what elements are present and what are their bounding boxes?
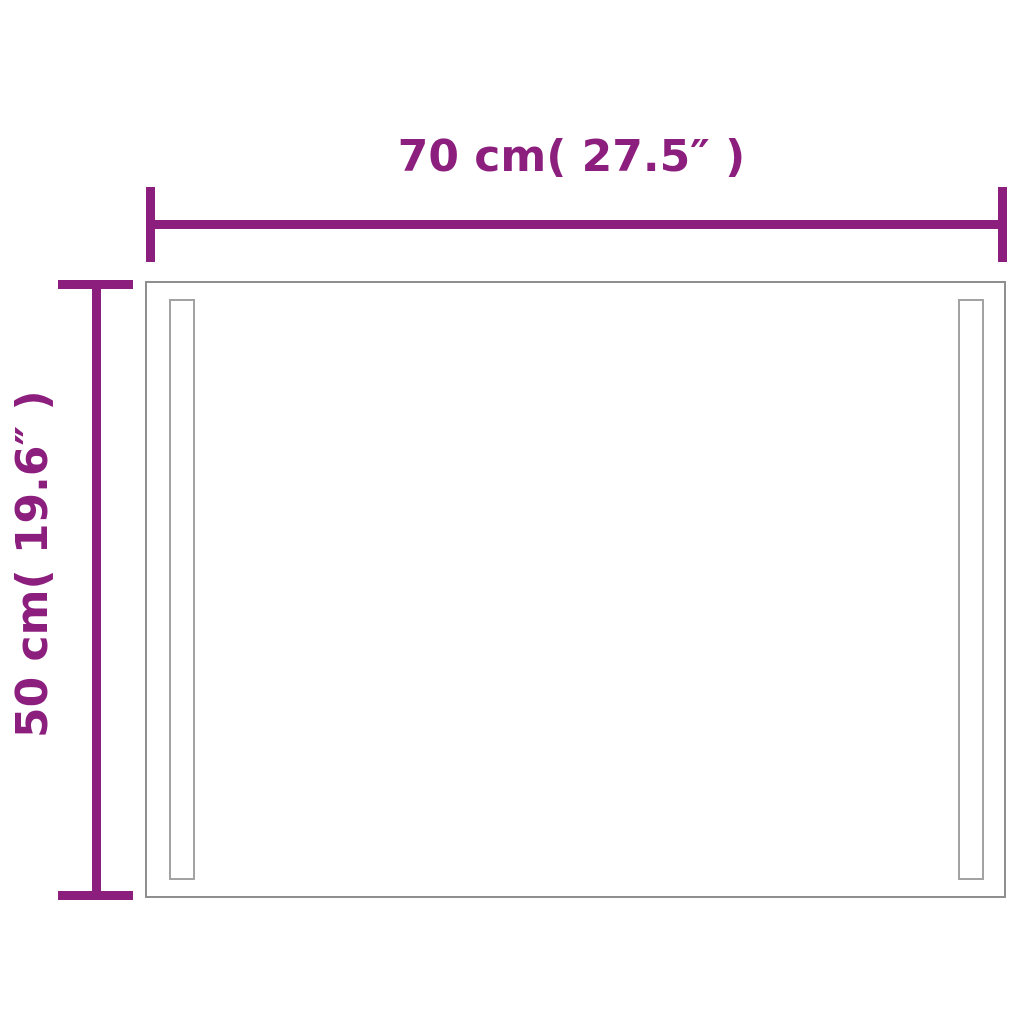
width-dimension-label: 70 cm( 27.5″ ): [141, 134, 1002, 180]
height-dimension-line: [92, 284, 101, 896]
dimension-diagram: 70 cm( 27.5″ ) 50 cm( 19.6″ ): [0, 0, 1024, 1024]
width-dimension-tick-left: [146, 187, 155, 262]
led-strip-left: [169, 299, 195, 880]
height-dimension-cap-top: [58, 280, 133, 289]
width-dimension-line: [146, 220, 1007, 229]
mirror-outline: [145, 281, 1006, 898]
led-strip-right: [958, 299, 984, 880]
width-dimension-tick-right: [998, 187, 1007, 262]
height-dimension-cap-bottom: [58, 891, 133, 900]
height-dimension-label: 50 cm( 19.6″ ): [10, 438, 56, 738]
